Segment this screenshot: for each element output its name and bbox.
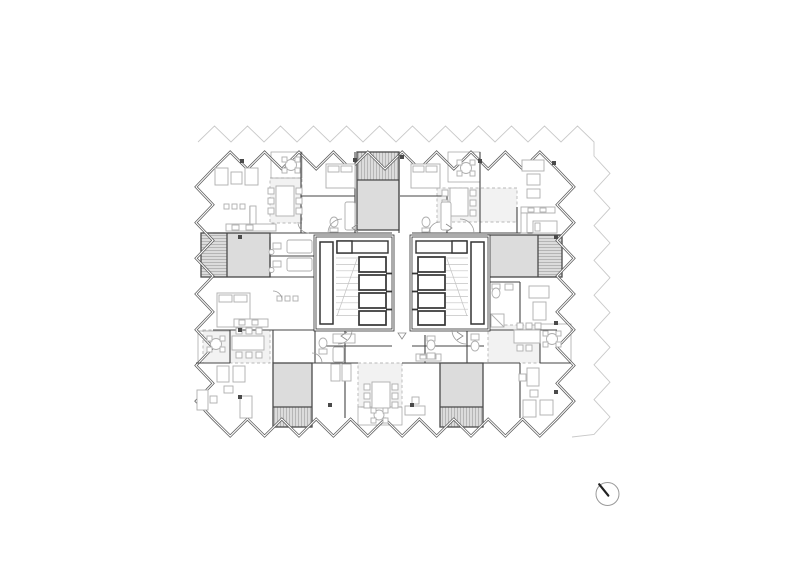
squares-row-west-center — [277, 296, 298, 301]
loggia-south-east — [440, 363, 483, 427]
dining-table-south-west — [232, 328, 264, 358]
stair-shaft-west — [320, 242, 333, 324]
loggia-east-center — [488, 235, 562, 277]
stair-shaft-east — [471, 242, 484, 324]
dining-table-south-center — [364, 382, 398, 408]
bed-north-west — [326, 164, 355, 188]
canvas-page — [0, 0, 800, 566]
kitchen-west-center — [234, 319, 268, 327]
floor-plan-drawing — [0, 0, 800, 566]
bathroom-south-inner-east — [427, 336, 435, 359]
bed-north-east-corner — [533, 221, 557, 233]
core-east-duct — [452, 241, 467, 253]
loggia-south-west — [273, 363, 312, 427]
wardrobe-south-inner — [333, 334, 355, 343]
core-east — [411, 236, 489, 330]
core-west — [315, 236, 393, 330]
bathroom-south-east — [471, 334, 479, 351]
bed-north-east — [411, 164, 440, 188]
core-west-duct — [337, 241, 352, 253]
dining-table-north-west — [268, 186, 302, 216]
